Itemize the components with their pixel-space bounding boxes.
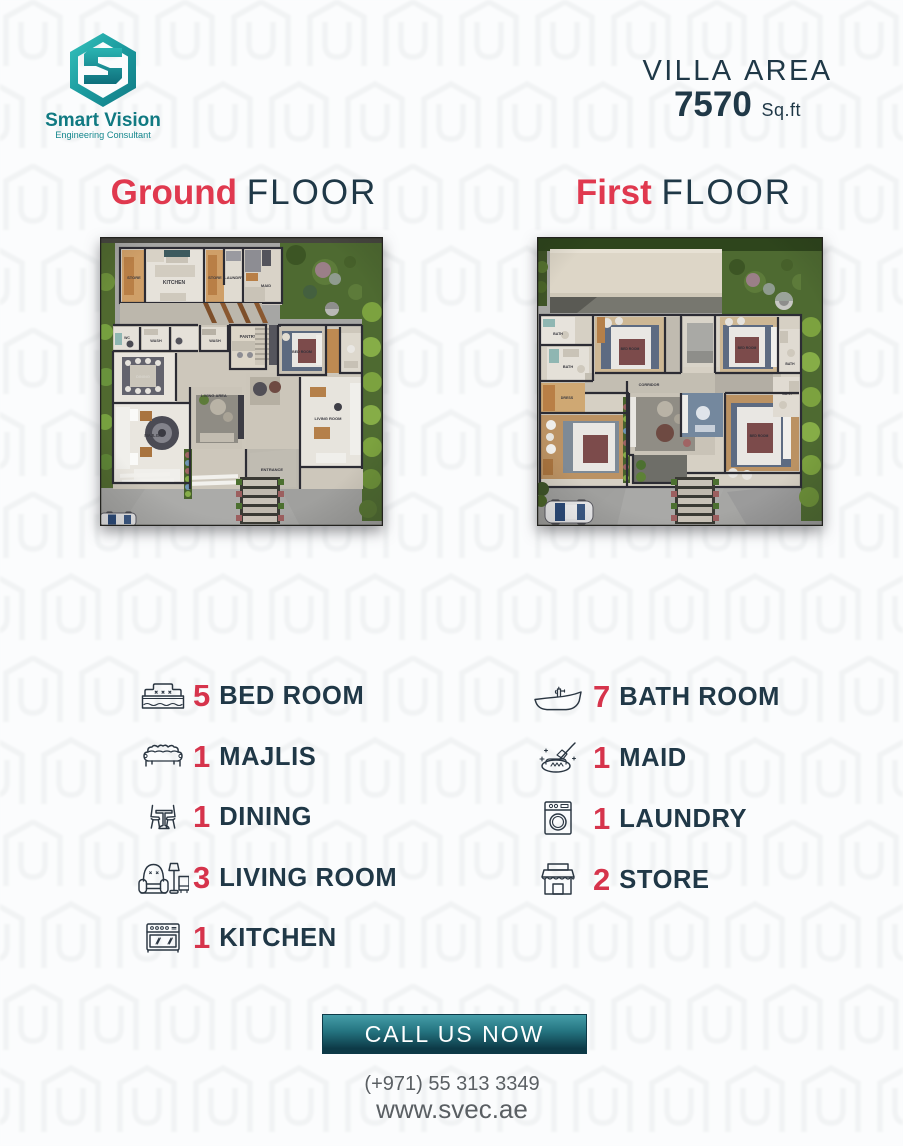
svg-text:Engineering Consultant: Engineering Consultant	[55, 130, 151, 140]
svg-text:Smart Vision: Smart Vision	[45, 110, 161, 131]
